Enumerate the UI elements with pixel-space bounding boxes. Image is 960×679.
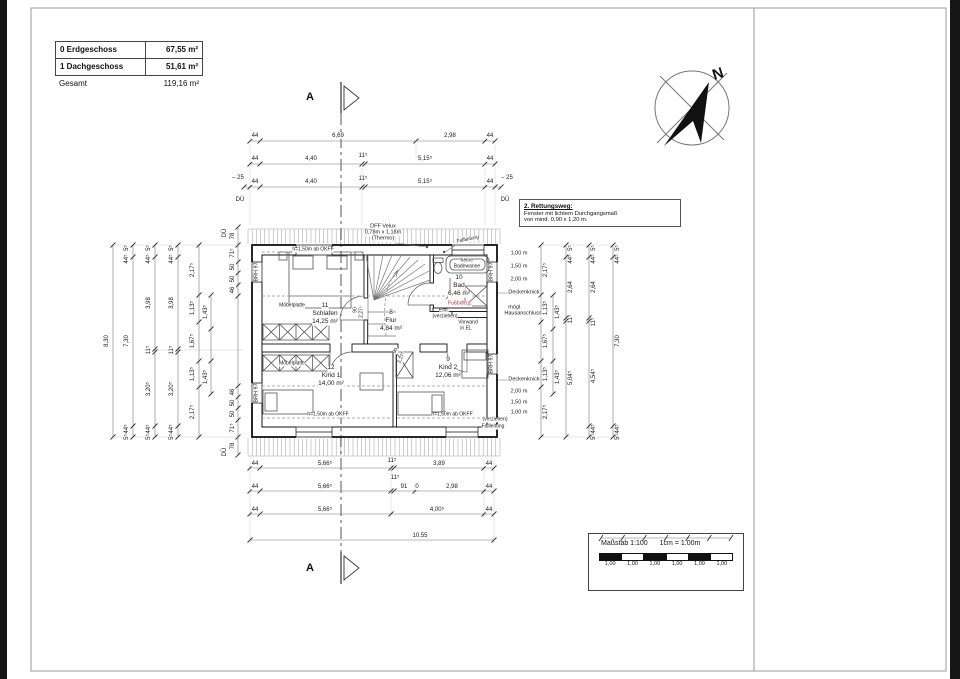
notes-label: (Thermo) — [372, 236, 395, 242]
roof-heights-label: 2,00 m — [511, 277, 528, 283]
room-number: 12 — [327, 365, 334, 372]
dim-left-label: 44⁵ — [169, 254, 175, 263]
area-table-value: 67,55 m² — [145, 42, 202, 58]
dim-top-label: 44 — [252, 179, 259, 185]
dim-left-label: 1,67⁵ — [190, 334, 196, 348]
area-table-row: 1 Dachgeschoss51,61 m² — [56, 58, 202, 75]
dim-right-label: 7,30 — [615, 335, 621, 347]
wall-labels-label: BRH 97 — [489, 262, 495, 281]
dim-left-label: 50 — [230, 411, 236, 418]
dim-left-label: 3,98 — [146, 297, 152, 309]
dim-left-label: 1,43⁵ — [203, 370, 209, 384]
dim-top-label: DÜ — [236, 197, 245, 203]
wall-labels-label: BRH 97 — [254, 262, 260, 281]
dim-top-label: 4,40 — [305, 156, 317, 162]
roof-heights-label: Deckenknick — [508, 377, 539, 383]
section-label-top: A — [306, 91, 314, 103]
area-table-value: 119,16 m² — [147, 76, 203, 92]
dim-left-label: 2,17⁵ — [190, 263, 196, 277]
room-number: 8 — [389, 310, 393, 317]
dim-left-label: 44⁵ — [169, 424, 175, 433]
scale-segment — [643, 554, 665, 560]
drawing-sheet: 0 Erdgeschoss67,55 m²1 Dachgeschoss51,61… — [0, 0, 960, 679]
dim-right-label: 1,13⁵ — [543, 301, 549, 315]
area-table-value: 51,61 m² — [145, 59, 202, 75]
dim-top-label: – 25 — [501, 175, 513, 181]
dim-top-label: 2,98 — [444, 133, 456, 139]
dim-top-label: 11⁵ — [359, 153, 368, 159]
section-flag-bottom — [344, 556, 359, 580]
room-name: Kind 2 — [439, 365, 457, 372]
dim-bottom-label: 11⁵ — [388, 458, 397, 464]
dim-left-label: 8,30 — [104, 335, 110, 347]
dim-bottom-label: 44 — [252, 484, 259, 490]
room-area: 4,84 m² — [380, 326, 402, 333]
notes-label: Fußbdhzg. — [448, 302, 472, 307]
wall-labels-label: BRH 97 — [254, 383, 260, 402]
dim-bottom-label: 2,98 — [446, 484, 458, 490]
room-number: 11 — [322, 303, 329, 310]
dim-right-label: 44⁵ — [568, 254, 574, 263]
dim-left-label: 5⁵ — [169, 245, 175, 251]
sheet-frame — [31, 8, 946, 671]
dim-left-label: 78 — [230, 443, 236, 450]
dim-bottom-label: 5,66⁵ — [318, 507, 332, 513]
room-name: Bad — [453, 283, 465, 290]
roof-heights-label: Deckenknick — [508, 290, 539, 296]
notes-label: 2,27⁵ — [360, 306, 365, 318]
dim-right-label: 2,17⁵ — [543, 405, 549, 419]
furniture — [263, 252, 488, 415]
scale-segment-label: 1,00 — [599, 561, 621, 567]
dim-left-label: 5⁵ — [124, 434, 130, 440]
dim-left-label: 1,13⁵ — [190, 301, 196, 315]
dim-right-label: 5⁵ — [591, 245, 597, 251]
dim-right-label: 5⁵ — [615, 245, 621, 251]
scale-segment-labels: 1,001,001,001,001,001,00 — [599, 561, 733, 567]
dim-top-label: 44 — [252, 156, 259, 162]
dim-right-label: 2,64 — [591, 281, 597, 293]
window-bottom-kind2 — [446, 425, 478, 439]
notes-label: Badewanne — [454, 265, 480, 270]
bed-schlafen — [289, 252, 351, 308]
north-arrow — [664, 82, 709, 146]
dim-left-label: 11⁵ — [169, 346, 175, 355]
scale-segment-label: 1,00 — [666, 561, 688, 567]
roof-rafter-hatch-bottom — [248, 438, 500, 456]
dim-bottom-label: 44 — [486, 461, 493, 467]
scale-ticks — [597, 534, 735, 546]
dim-right-label: 4,54⁵ — [591, 369, 597, 383]
dim-left-label: 3,20⁵ — [146, 382, 152, 396]
notes-label: h=1,50m ab OKFF — [307, 413, 348, 418]
dim-left-label: 1,43⁵ — [203, 305, 209, 319]
scale-segment-label: 1,00 — [621, 561, 643, 567]
dim-top-label: 44 — [487, 133, 494, 139]
dim-top-label: 5,15⁵ — [418, 156, 432, 162]
dim-bottom-label: 44 — [252, 461, 259, 467]
room-number: 10 — [455, 275, 462, 282]
dim-bottom-label: 44 — [252, 507, 259, 513]
wc — [433, 258, 443, 263]
roof-heights-label: Fallleitung — [482, 425, 505, 430]
area-table: 0 Erdgeschoss67,55 m²1 Dachgeschoss51,61… — [55, 41, 203, 92]
area-table-label: 1 Dachgeschoss — [56, 59, 145, 75]
dim-left-label: 50 — [230, 264, 236, 271]
section-flag-top — [344, 86, 359, 110]
dim-left-label: 3,98 — [169, 297, 175, 309]
dim-top-label: 6,69 — [332, 133, 344, 139]
scale-segment-label: 1,00 — [644, 561, 666, 567]
dim-top-label: 4,40 — [305, 179, 317, 185]
dim-bottom-label: 5,66⁵ — [318, 461, 332, 467]
dim-left-label: 5⁵ — [146, 434, 152, 440]
dim-left-label: 5⁵ — [169, 434, 175, 440]
dim-top-label: 11⁵ — [359, 176, 368, 182]
rescue-note-title: 2. Rettungsweg: — [524, 203, 676, 210]
dim-right-label: 5,04⁵ — [568, 371, 574, 385]
dim-left-label: 44⁵ — [124, 424, 130, 433]
dim-right-label: 5⁵ — [568, 245, 574, 251]
area-table-row: Gesamt119,16 m² — [55, 76, 203, 92]
scale-segment-label: 1,00 — [711, 561, 733, 567]
scale-bar: Maßstab 1:100 1cm = 1.00m 1,001,001,001,… — [588, 533, 744, 591]
room-name: Schlafen — [312, 311, 337, 318]
scale-segment — [710, 554, 732, 560]
dim-bottom-label: 10,55 — [412, 533, 427, 539]
dim-bottom-label: 3,89 — [433, 461, 445, 467]
dim-right-label: 5⁵ — [591, 434, 597, 440]
section-line — [341, 82, 359, 584]
bed2-kind2 — [462, 350, 488, 378]
dim-left-label: 44⁵ — [146, 424, 152, 433]
dim-bottom-label: 44 — [486, 484, 493, 490]
wall-labels-label: BRH 97 — [489, 354, 495, 373]
dim-right-label: 1,43⁵ — [555, 370, 561, 384]
roof-heights-label: 1,50 m — [511, 400, 528, 406]
room-name: Flur — [385, 318, 396, 325]
area-table-label: 0 Erdgeschoss — [56, 42, 145, 58]
notes-label: h=1,50m ab OKFF — [292, 248, 333, 253]
dim-left-label: 11⁵ — [146, 346, 152, 355]
window-top-bad — [452, 243, 484, 257]
bed-kind1 — [263, 390, 313, 414]
dim-bottom-label: 0 — [415, 484, 418, 490]
dim-left-label: 1,13⁵ — [190, 367, 196, 381]
room-area: 6,46 m² — [448, 291, 470, 298]
window-bottom-kind1 — [296, 425, 332, 439]
notes-label: (verziehen) — [432, 315, 457, 320]
room-area: 12,06 m² — [435, 373, 461, 380]
dim-left-label: 71⁵ — [230, 423, 236, 432]
dim-left-label: 5⁵ — [146, 245, 152, 251]
dim-right-label: 11⁵ — [591, 318, 597, 327]
dim-bottom-label: 5,66⁵ — [318, 484, 332, 490]
rescue-note-line: von mind. 0,90 x 1,20 m. — [524, 217, 676, 223]
rescue-note: 2. Rettungsweg: Fenster mit lichtem Durc… — [519, 199, 681, 227]
roof-heights-label: 1,50 m — [511, 264, 528, 270]
scale-segment — [688, 554, 710, 560]
floor-plan-drawing — [0, 0, 960, 679]
roof-heights-label: Hausanschluss — [504, 311, 541, 317]
dim-top-label: DÜ — [501, 197, 510, 203]
dim-top-label: 5,15⁵ — [418, 179, 432, 185]
dim-right-label: 44⁵ — [591, 424, 597, 433]
dim-left-label: 7,30 — [124, 335, 130, 347]
room-area: 14,25 m² — [312, 319, 338, 326]
area-table-label: Gesamt — [55, 76, 147, 92]
dim-right-label: 1,67⁵ — [543, 334, 549, 348]
dim-left-label: 71⁵ — [230, 248, 236, 257]
dim-left-label: 46 — [230, 287, 236, 294]
dim-left-label: 46 — [230, 389, 236, 396]
dim-left-label: DÜ — [222, 448, 228, 457]
dim-right-label: 44⁵ — [591, 254, 597, 263]
notes-label: Möbelplatte — [279, 362, 305, 367]
scale-segment — [666, 554, 688, 560]
notes-label: h=1,50m ab OKFF — [431, 413, 472, 418]
dim-right-label: 44⁵ — [615, 254, 621, 263]
dim-left-label: 50 — [230, 276, 236, 283]
dim-right-label: 1,13⁵ — [543, 367, 549, 381]
dim-left-label: DÜ — [222, 229, 228, 238]
roof-heights-label: 2,00 m — [511, 389, 528, 395]
dim-left-label: 44⁵ — [124, 254, 130, 263]
roof-heights-label: 1,00 m — [511, 251, 528, 257]
dim-left-label: 50 — [230, 400, 236, 407]
dim-right-label: 5⁵ — [615, 434, 621, 440]
scale-segments-bar — [599, 553, 733, 561]
roof-heights-label: 1,00 m — [511, 410, 528, 416]
scale-segment-label: 1,00 — [688, 561, 710, 567]
dim-right-label: 44⁵ — [615, 424, 621, 433]
dim-bottom-label: 91 — [401, 484, 408, 490]
room-area: 14,00 m² — [318, 381, 344, 388]
notes-label: in EL — [460, 327, 471, 332]
dim-top-label: 44 — [487, 179, 494, 185]
dim-right-label: 2,64 — [568, 281, 574, 293]
dim-left-label: 2,17⁵ — [190, 405, 196, 419]
dim-top-label: 44 — [487, 156, 494, 162]
dim-bottom-label: 11⁵ — [391, 475, 400, 481]
room-name: Kind 1 — [322, 373, 340, 380]
roof-heights-label: (verziehen) — [482, 418, 507, 423]
exterior-walls — [250, 243, 499, 439]
section-label-bottom: A — [306, 562, 314, 574]
dim-bottom-label: 44 — [486, 507, 493, 513]
dim-right-label: 1,43⁵ — [555, 305, 561, 319]
dim-left-label: 78 — [230, 233, 236, 240]
dim-top-label: 44 — [252, 133, 259, 139]
dim-left-label: 44⁵ — [146, 254, 152, 263]
dim-left-label: 5⁵ — [124, 245, 130, 251]
dim-left-label: 3,20⁵ — [169, 382, 175, 396]
room-number: 9 — [446, 357, 450, 364]
desk-kind1 — [360, 373, 383, 390]
area-table-row: 0 Erdgeschoss67,55 m² — [56, 42, 202, 58]
dim-right-label: 11⁵ — [568, 315, 574, 324]
scale-segment — [600, 554, 621, 560]
dim-bottom-label: 4,00⁵ — [430, 507, 444, 513]
scale-segment — [621, 554, 643, 560]
notes-label: Möbelplatte — [279, 304, 305, 309]
dim-right-label: 2,17⁵ — [543, 263, 549, 277]
dim-top-label: – 25 — [232, 175, 244, 181]
